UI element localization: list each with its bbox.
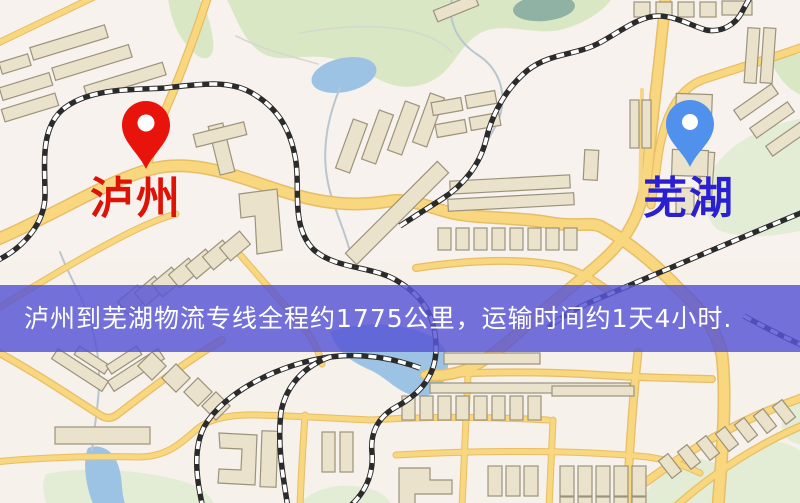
route-info-banner: 泸州到芜湖物流专线全程约1775公里，运输时间约1天4小时. xyxy=(0,285,800,352)
destination-city-label: 芜湖 xyxy=(643,177,735,221)
route-map-image: 泸州 芜湖 泸州到芜湖物流专线全程约1775公里，运输时间约1天4小时. xyxy=(0,0,800,503)
destination-pin-hole xyxy=(682,114,698,130)
origin-pin-hole xyxy=(138,115,155,132)
origin-city-label: 泸州 xyxy=(90,177,182,221)
map-canvas xyxy=(0,0,800,503)
route-info-text: 泸州到芜湖物流专线全程约1775公里，运输时间约1天4小时. xyxy=(0,285,800,352)
